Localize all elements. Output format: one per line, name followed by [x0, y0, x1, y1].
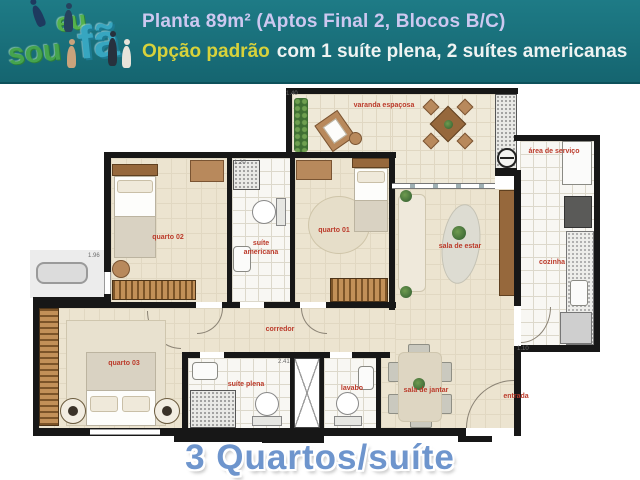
page: eu sou fã Planta 89m² (Aptos Final 2, Bl…: [0, 0, 640, 480]
wall: [514, 135, 600, 141]
toilet-icon: [334, 416, 362, 426]
wall: [227, 158, 232, 304]
dimension-label: 2.41: [278, 359, 290, 365]
room-label-quarto01: quarto 01: [304, 227, 364, 236]
nightstand-icon: [60, 398, 86, 424]
room-label-varanda: varanda espaçosa: [336, 102, 432, 111]
pillow: [90, 396, 118, 412]
wall: [104, 152, 396, 158]
sliding-door: [392, 183, 495, 189]
plant-icon: [400, 286, 412, 298]
plan-subtitle-highlight: Opção padrão: [142, 41, 270, 62]
eu-sou-fa-logo: eu sou fã: [0, 0, 140, 84]
wardrobe-icon: [39, 308, 59, 426]
room-label-entrada: entrada: [492, 393, 540, 402]
bathtub-icon: [36, 262, 88, 284]
wall: [286, 88, 292, 158]
shower-icon: [190, 390, 236, 428]
wall-column-base: [262, 434, 324, 443]
room-label-lavabo: lavabo: [328, 385, 376, 394]
room-label-sala-estar: sala de estar: [420, 243, 500, 252]
dimension-label: 1.20: [234, 160, 246, 166]
wall: [33, 297, 39, 436]
room-label-quarto03: quarto 03: [92, 360, 156, 369]
wall: [495, 168, 517, 176]
wall: [320, 358, 324, 428]
plant-icon: [444, 120, 453, 129]
room-label-suite-plena: suíte plena: [208, 381, 284, 390]
wall: [290, 158, 295, 304]
door-opening: [200, 352, 224, 358]
entry-door-opening: [466, 428, 514, 436]
door-opening: [330, 352, 352, 358]
pillow: [357, 171, 385, 183]
wall-column-base: [174, 434, 262, 442]
wardrobe-icon: [112, 280, 196, 300]
toilet-icon: [252, 416, 282, 426]
kitchen-sink-icon: [570, 280, 588, 306]
door-opening: [196, 302, 222, 308]
closet: [294, 358, 320, 428]
pillow: [122, 396, 150, 412]
toilet-icon: [255, 392, 279, 416]
bed-headboard: [112, 164, 158, 176]
dimension-label: 1.10: [517, 346, 529, 352]
side-table-icon: [349, 132, 362, 145]
wall: [290, 358, 294, 428]
drain-symbol-icon: [497, 148, 517, 168]
person-icon: [64, 10, 73, 32]
wall: [514, 170, 521, 310]
room-label-corredor: corredor: [248, 326, 312, 335]
stove-icon: [564, 196, 592, 228]
tv-panel-icon: [499, 190, 515, 296]
door-opening: [300, 302, 326, 308]
plant-icon: [400, 190, 412, 202]
door-opening: [514, 306, 521, 346]
toilet-icon: [336, 392, 359, 415]
window: [90, 429, 160, 435]
header-banner: eu sou fã Planta 89m² (Aptos Final 2, Bl…: [0, 0, 640, 84]
plan-subtitle-rest: com 1 suíte plena, 2 suítes americanas: [277, 41, 628, 62]
wall: [389, 152, 395, 310]
wall: [182, 352, 188, 428]
dimension-label: 1.40: [286, 91, 298, 97]
sink-icon: [192, 362, 218, 380]
door-opening: [240, 302, 264, 308]
toilet-icon: [252, 200, 276, 224]
room-label-sala-jantar: sala de jantar: [394, 387, 458, 396]
person-icon: [122, 46, 131, 68]
wardrobe-icon: [330, 278, 388, 302]
window: [104, 272, 111, 294]
plan-title: Planta 89m² (Aptos Final 2, Blocos B/C): [142, 11, 506, 33]
nightstand-icon: [154, 398, 180, 424]
logo-word-sou: sou: [6, 33, 63, 72]
wall: [594, 135, 600, 352]
plan-subtitle: Opção padrãocom 1 suíte plena, 2 suítes …: [142, 41, 627, 63]
dimension-label: 1.96: [88, 253, 100, 259]
room-label-quarto02: quarto 02: [138, 234, 198, 243]
side-table-icon: [112, 260, 130, 278]
person-icon: [67, 46, 76, 68]
blanket: [86, 352, 156, 392]
wall: [286, 88, 518, 94]
room-label-suite-americana: suíte americana: [235, 240, 287, 258]
person-icon: [108, 38, 117, 66]
bed-headboard: [352, 158, 390, 168]
planter-icon: [294, 98, 308, 152]
dresser-icon: [190, 160, 224, 182]
wall: [39, 302, 144, 308]
pillow: [117, 180, 153, 193]
fridge-icon: [560, 312, 592, 344]
room-label-cozinha: cozinha: [526, 259, 578, 268]
wall: [376, 358, 381, 428]
person-icon: [30, 4, 47, 28]
room-label-area-servico: área de serviço: [524, 148, 584, 157]
desk-icon: [296, 160, 332, 180]
palm-plant-icon: [452, 226, 466, 240]
caption-text: 3 Quartos/suíte: [0, 438, 640, 478]
toilet-icon: [276, 198, 286, 226]
